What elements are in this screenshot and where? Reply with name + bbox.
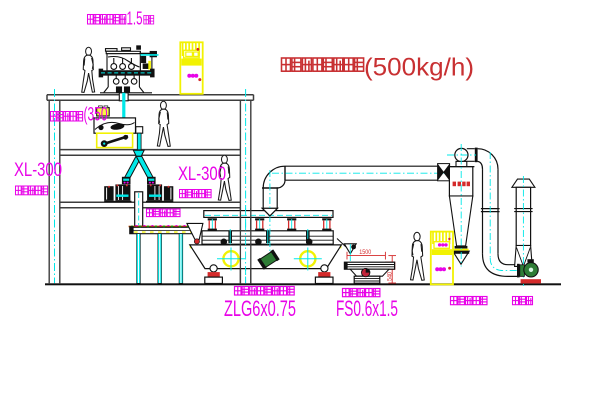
- svg-text:1.5: 1.5: [127, 9, 143, 29]
- svg-text:1500: 1500: [359, 249, 371, 256]
- svg-text:540: 540: [386, 272, 393, 281]
- svg-text:FS0.6x1.5: FS0.6x1.5: [336, 296, 398, 321]
- svg-text:ZLG6x0.75: ZLG6x0.75: [224, 296, 296, 321]
- svg-text:(500kg/h): (500kg/h): [364, 54, 474, 82]
- svg-text:XL-300: XL-300: [14, 160, 62, 181]
- svg-text:(350: (350: [84, 105, 108, 126]
- svg-text:XL-300: XL-300: [178, 164, 226, 185]
